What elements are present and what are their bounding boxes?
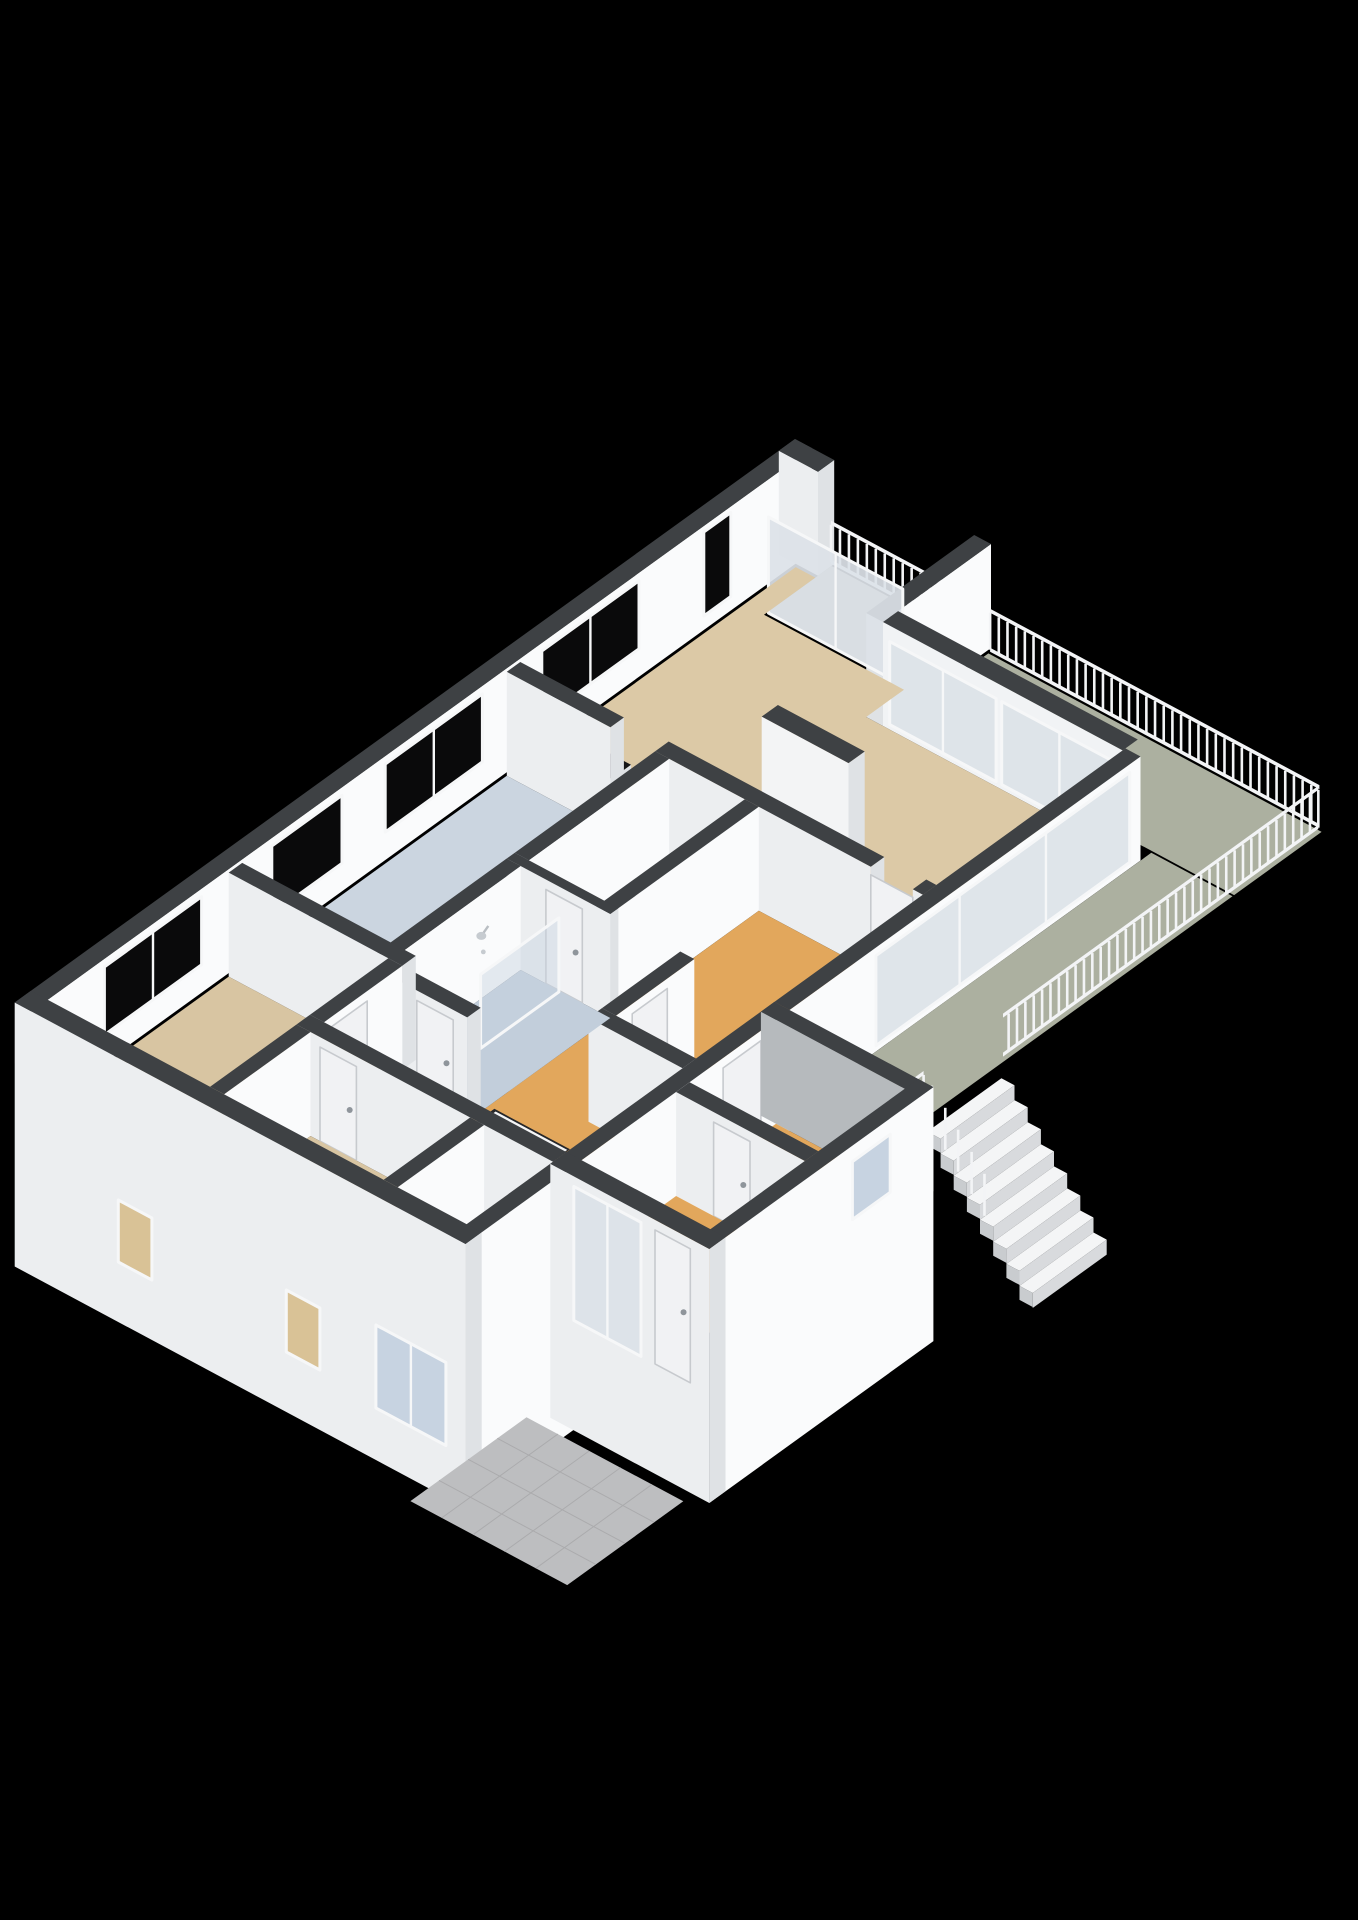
front-door [655, 1230, 690, 1383]
8 [927, 1078, 1106, 1308]
floorplan-3d-rendering [0, 0, 1358, 1920]
floorplan-stage [0, 0, 1358, 1920]
door-bedroom2 [320, 1047, 356, 1161]
window-slit-living [704, 513, 731, 617]
